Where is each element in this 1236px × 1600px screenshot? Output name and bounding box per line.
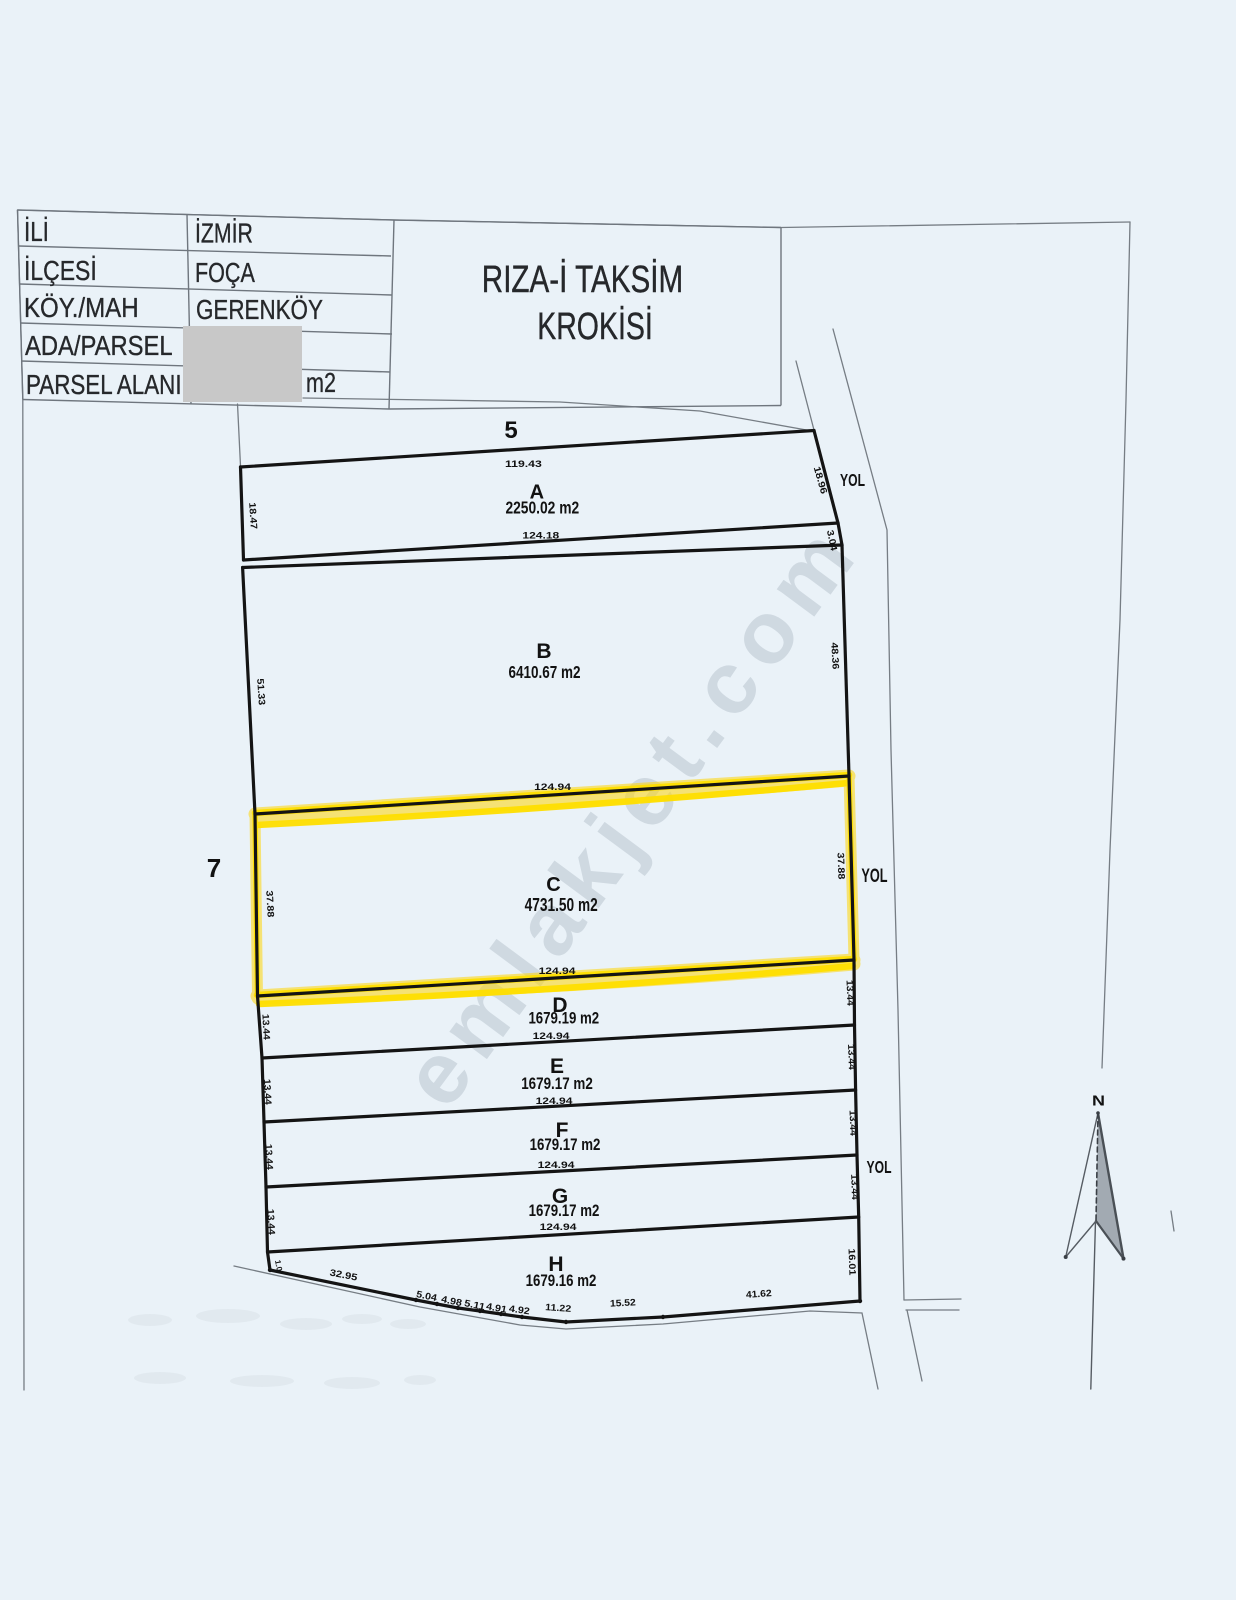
svg-text:48.36: 48.36: [828, 642, 840, 670]
svg-text:124.94: 124.94: [536, 1096, 573, 1106]
svg-text:İLİ: İLİ: [24, 216, 49, 248]
svg-text:124.94: 124.94: [540, 1222, 577, 1232]
svg-text:5: 5: [504, 417, 517, 444]
svg-text:RIZA-İ TAKSİM: RIZA-İ TAKSİM: [482, 259, 683, 301]
svg-text:YOL: YOL: [867, 1158, 892, 1178]
svg-text:KROKİSİ: KROKİSİ: [537, 306, 653, 348]
svg-text:11.22: 11.22: [545, 1303, 572, 1315]
svg-text:37.88: 37.88: [835, 852, 846, 880]
svg-text:13.44: 13.44: [261, 1079, 273, 1106]
svg-text:124.94: 124.94: [539, 966, 576, 976]
svg-text:18.47: 18.47: [246, 502, 258, 530]
svg-text:124.94: 124.94: [534, 782, 571, 792]
svg-text:124.18: 124.18: [522, 531, 559, 541]
svg-text:YOL: YOL: [861, 866, 887, 887]
svg-text:FOÇA: FOÇA: [195, 257, 255, 288]
svg-text:GERENKÖY: GERENKÖY: [196, 295, 323, 326]
svg-text:C: C: [546, 874, 560, 896]
svg-text:7: 7: [207, 853, 221, 883]
svg-text:2250.02 m2: 2250.02 m2: [505, 499, 579, 518]
svg-text:1679.17 m2: 1679.17 m2: [530, 1136, 601, 1155]
svg-text:İLÇESİ: İLÇESİ: [24, 255, 97, 287]
svg-text:N: N: [1092, 1092, 1105, 1109]
svg-text:37.88: 37.88: [263, 890, 275, 918]
svg-text:119.43: 119.43: [505, 459, 542, 469]
svg-text:1679.17 m2: 1679.17 m2: [529, 1202, 600, 1221]
svg-text:13.44: 13.44: [844, 980, 855, 1007]
svg-text:13.44: 13.44: [845, 1044, 856, 1071]
svg-text:124.94: 124.94: [533, 1031, 570, 1041]
svg-text:13.44: 13.44: [848, 1174, 859, 1201]
svg-text:13.44: 13.44: [264, 1209, 276, 1236]
svg-text:1679.16 m2: 1679.16 m2: [526, 1272, 597, 1291]
svg-text:13.44: 13.44: [259, 1014, 271, 1041]
svg-text:16.01: 16.01: [846, 1248, 857, 1276]
svg-text:İZMİR: İZMİR: [195, 217, 253, 250]
svg-text:KÖY./MAH: KÖY./MAH: [24, 291, 139, 323]
svg-text:B: B: [536, 640, 551, 663]
svg-text:ADA/PARSEL: ADA/PARSEL: [25, 329, 173, 361]
svg-text:m2: m2: [306, 367, 336, 398]
svg-text:51.33: 51.33: [254, 678, 266, 706]
svg-text:6410.67 m2: 6410.67 m2: [509, 663, 581, 682]
svg-text:13.44: 13.44: [847, 1110, 858, 1137]
svg-text:13.44: 13.44: [262, 1144, 274, 1171]
svg-text:YOL: YOL: [840, 471, 865, 491]
svg-text:124.94: 124.94: [538, 1160, 575, 1170]
svg-text:1679.17 m2: 1679.17 m2: [521, 1075, 593, 1094]
svg-text:1679.19 m2: 1679.19 m2: [528, 1009, 599, 1028]
svg-text:4731.50 m2: 4731.50 m2: [525, 895, 598, 915]
svg-text:41.62: 41.62: [746, 1288, 773, 1300]
svg-text:PARSEL ALANI: PARSEL ALANI: [26, 370, 182, 401]
svg-text:15.52: 15.52: [610, 1298, 637, 1310]
